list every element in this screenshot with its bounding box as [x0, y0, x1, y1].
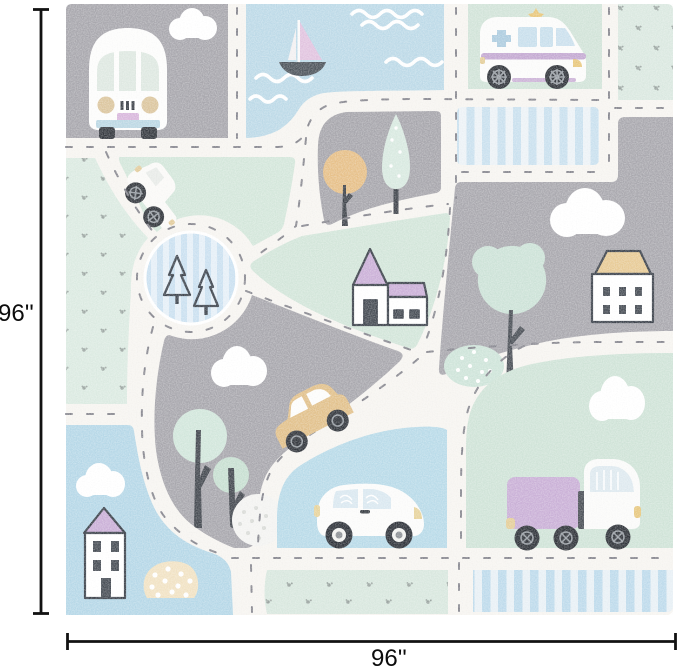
svg-text:96'': 96''	[371, 645, 407, 666]
svg-text:96'': 96''	[0, 300, 34, 327]
